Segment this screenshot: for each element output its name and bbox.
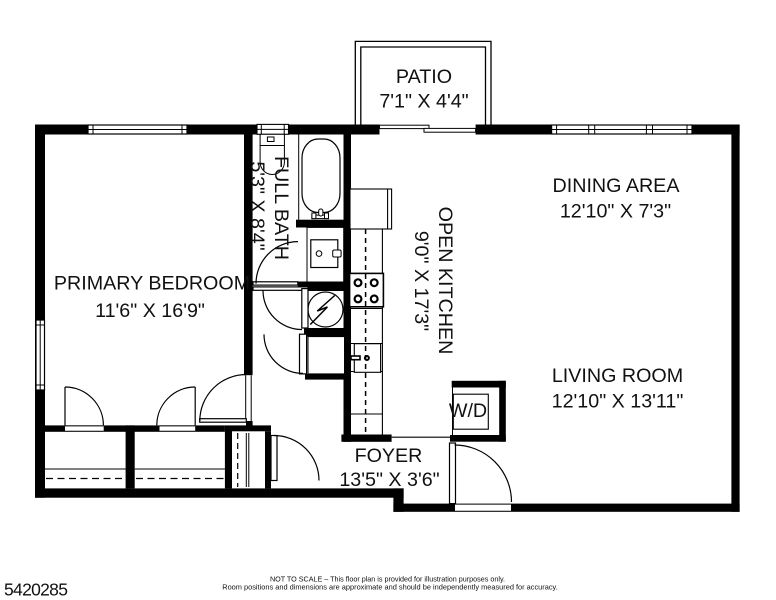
svg-text:PATIO: PATIO xyxy=(396,66,452,88)
svg-text:9'0" X 17'3": 9'0" X 17'3" xyxy=(410,231,432,331)
svg-text:FOYER: FOYER xyxy=(355,445,423,467)
svg-text:OPEN KITCHEN: OPEN KITCHEN xyxy=(434,207,456,355)
svg-text:FULL BATH: FULL BATH xyxy=(270,156,292,260)
svg-text:12'10" X 13'11": 12'10" X 13'11" xyxy=(552,391,684,413)
svg-text:LIVING ROOM: LIVING ROOM xyxy=(552,365,683,387)
svg-text:12'10" X 7'3": 12'10" X 7'3" xyxy=(560,201,671,223)
svg-text:13'5" X 3'6": 13'5" X 3'6" xyxy=(339,469,439,491)
svg-text:DINING AREA: DINING AREA xyxy=(553,175,681,197)
svg-text:5'3" X 8'4": 5'3" X 8'4" xyxy=(246,161,268,250)
svg-text:W/D: W/D xyxy=(449,400,487,422)
svg-text:11'6" X 16'9": 11'6" X 16'9" xyxy=(95,300,205,322)
svg-text:7'1" X 4'4": 7'1" X 4'4" xyxy=(379,91,468,113)
svg-text:PRIMARY BEDROOM: PRIMARY BEDROOM xyxy=(54,273,250,295)
svg-text:5420285: 5420285 xyxy=(4,580,67,600)
svg-text:Room positions and dimensions: Room positions and dimensions are approx… xyxy=(222,583,558,592)
